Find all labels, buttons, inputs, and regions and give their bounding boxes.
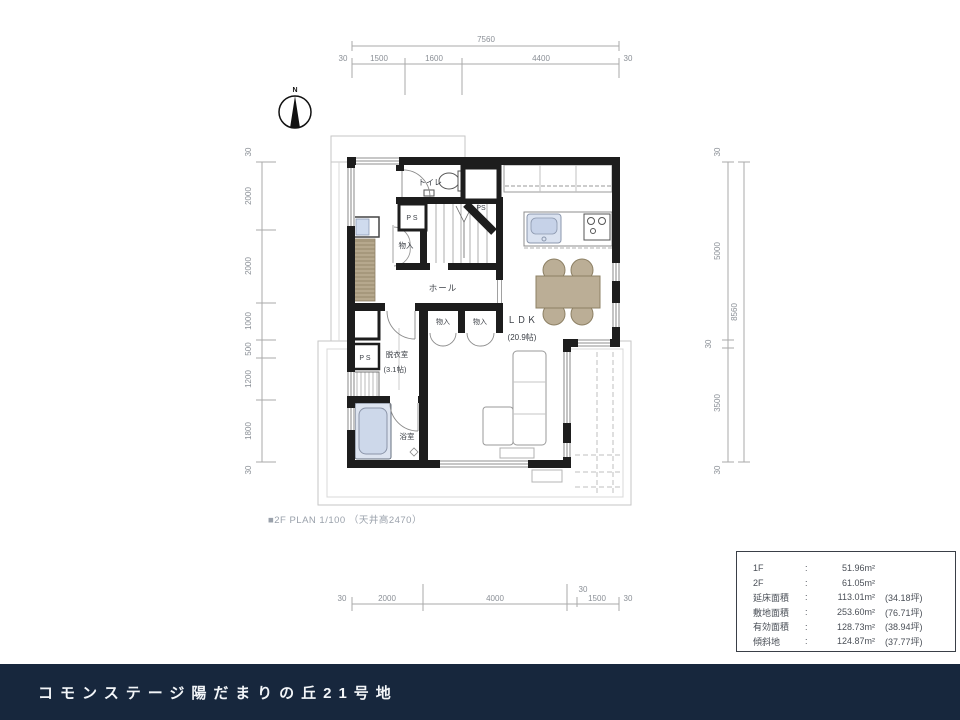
room-label-bath: 浴室 <box>400 431 415 441</box>
row-label: 2F <box>753 578 805 588</box>
room-label-ps-upper-right: PS <box>476 205 486 212</box>
dim-label: 7560 <box>477 35 495 44</box>
washer <box>352 372 379 398</box>
dim-label: 5000 <box>713 242 722 260</box>
room-label-ldk: ＬＤＫ <box>507 315 537 325</box>
north-compass: N <box>279 87 311 128</box>
title-bar: コモンステージ陽だまりの丘21号地 <box>0 664 960 720</box>
row-value: 124.87m² <box>817 636 875 646</box>
room-label-ps-upper-left: P S <box>406 215 417 222</box>
table-row: 1F:51.96m² <box>753 561 955 576</box>
window-cabinet-glass <box>356 219 369 235</box>
row-label: 敷地面積 <box>753 606 805 619</box>
dim-label: 1600 <box>425 54 443 63</box>
dim-label: 2000 <box>244 187 253 205</box>
dim-label: 30 <box>713 147 722 156</box>
balcony-step <box>532 470 562 482</box>
room-label-toilet: トイレ <box>418 178 442 187</box>
row-colon: : <box>805 563 817 573</box>
dim-top <box>352 41 619 95</box>
room-label-closet-2: 物入 <box>473 317 487 326</box>
dim-label: 30 <box>713 465 722 474</box>
row-value: 128.73m² <box>817 622 875 632</box>
dim-left <box>256 162 276 462</box>
room-label-ldk-size: (20.9帖) <box>508 332 537 342</box>
dim-label: 30 <box>624 54 633 63</box>
row-label: 傾斜地 <box>753 635 805 648</box>
dim-label: 2000 <box>378 594 396 603</box>
stove <box>584 214 610 240</box>
room-label-closet-1: 物入 <box>436 317 450 326</box>
row-colon: : <box>805 622 817 632</box>
dim-label: 30 <box>704 339 713 348</box>
row-colon: : <box>805 592 817 602</box>
dim-label: 30 <box>244 465 253 474</box>
table-row: 傾斜地:124.87m²(37.77坪) <box>753 634 955 649</box>
row-tsubo: (38.94坪) <box>875 620 941 633</box>
row-value: 61.05m² <box>817 578 875 588</box>
area-summary-table: 1F:51.96m² 2F:61.05m² 延床面積:113.01m²(34.1… <box>736 551 956 652</box>
table-row: 延床面積:113.01m²(34.18坪) <box>753 590 955 605</box>
row-colon: : <box>805 636 817 646</box>
dim-label: 8560 <box>730 303 739 321</box>
room-label-hall: ホール <box>429 283 458 293</box>
dim-label: 4400 <box>532 54 550 63</box>
dim-label: 30 <box>338 594 347 603</box>
floor-plan-page: トイレ P S PS 物入 ホール 物入 物入 ＬＤＫ (20.9帖) 脱衣室 … <box>0 0 960 720</box>
dim-label: 1500 <box>370 54 388 63</box>
dim-label: 3500 <box>713 394 722 412</box>
kitchen-back-counter <box>504 165 612 192</box>
row-label: 有効面積 <box>753 620 805 633</box>
dim-label: 1200 <box>244 370 253 388</box>
compass-north-label: N <box>292 87 297 94</box>
bathtub <box>355 403 391 459</box>
row-tsubo: (76.71坪) <box>875 606 941 619</box>
table-row: 2F:61.05m² <box>753 576 955 591</box>
room-label-closet-upper: 物入 <box>399 240 414 250</box>
dim-label: 30 <box>579 585 588 594</box>
kitchen-island <box>524 212 612 248</box>
table-row: 有効面積:128.73m²(38.94坪) <box>753 619 955 634</box>
dim-label: 30 <box>624 594 633 603</box>
dining-table <box>536 276 600 308</box>
row-value: 51.96m² <box>817 563 875 573</box>
dim-label: 1500 <box>588 594 606 603</box>
plan-caption: ■2F PLAN 1/100 （天井高2470） <box>268 512 422 526</box>
row-tsubo: (34.18坪) <box>875 591 941 604</box>
tv-board <box>500 448 534 458</box>
wood-counter <box>353 239 375 301</box>
dim-label: 30 <box>339 54 348 63</box>
row-label: 延床面積 <box>753 591 805 604</box>
room-label-dressing: 脱衣室 <box>386 349 409 359</box>
row-value: 113.01m² <box>817 592 875 602</box>
row-colon: : <box>805 578 817 588</box>
dim-label: 4000 <box>486 594 504 603</box>
row-colon: : <box>805 607 817 617</box>
shaft-box <box>463 167 499 201</box>
dim-label: 1000 <box>244 312 253 330</box>
row-label: 1F <box>753 563 805 573</box>
room-label-ps-lower: P S <box>359 355 370 362</box>
table-row: 敷地面積:253.60m²(76.71坪) <box>753 605 955 620</box>
row-value: 253.60m² <box>817 607 875 617</box>
balcony-hatch <box>575 352 622 496</box>
dim-label: 1800 <box>244 422 253 440</box>
project-title: コモンステージ陽だまりの丘21号地 <box>38 682 398 703</box>
room-label-dressing-size: (3.1帖) <box>384 364 407 374</box>
dim-label: 2000 <box>244 257 253 275</box>
dim-label: 500 <box>244 342 253 356</box>
dim-label: 30 <box>244 147 253 156</box>
row-tsubo: (37.77坪) <box>875 635 941 648</box>
